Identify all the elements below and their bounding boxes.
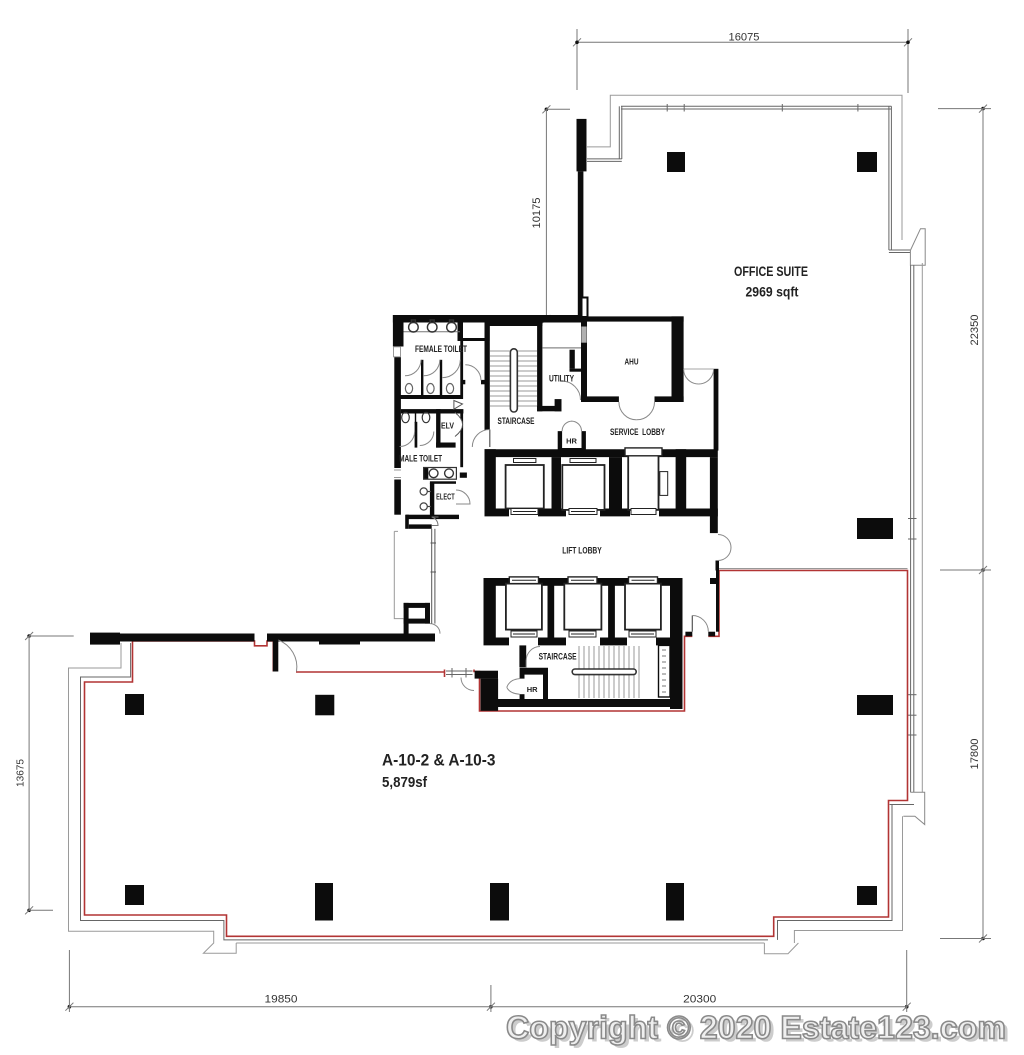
svg-text:ELECT: ELECT (436, 493, 455, 502)
svg-text:SERVICE LOBBY: SERVICE LOBBY (610, 427, 665, 437)
svg-text:16075: 16075 (729, 32, 760, 44)
svg-text:HR: HR (566, 437, 577, 446)
svg-text:OFFICE SUITE: OFFICE SUITE (734, 264, 808, 279)
svg-text:HR: HR (527, 685, 538, 694)
svg-text:13675: 13675 (16, 759, 27, 787)
svg-text:STAIRCASE: STAIRCASE (498, 416, 535, 426)
svg-text:UTILITY: UTILITY (549, 374, 574, 384)
svg-text:STAIRCASE: STAIRCASE (539, 652, 577, 662)
svg-text:AHU: AHU (625, 357, 639, 367)
svg-text:MALE TOILET: MALE TOILET (399, 454, 442, 464)
svg-text:17800: 17800 (969, 739, 981, 770)
svg-text:LIFT LOBBY: LIFT LOBBY (562, 545, 602, 555)
svg-text:5,879sf: 5,879sf (382, 774, 428, 791)
svg-text:ELV: ELV (441, 422, 455, 431)
svg-text:Copyright © 2020 Estate123.com: Copyright © 2020 Estate123.com (506, 1010, 1006, 1046)
svg-text:20300: 20300 (683, 994, 716, 1006)
svg-text:10175: 10175 (531, 198, 543, 229)
svg-text:A-10-2 & A-10-3: A-10-2 & A-10-3 (382, 751, 496, 770)
svg-text:19850: 19850 (265, 994, 298, 1006)
svg-text:FEMALE TOILET: FEMALE TOILET (415, 344, 467, 354)
svg-text:2969 sqft: 2969 sqft (746, 284, 799, 300)
svg-text:22350: 22350 (969, 315, 981, 346)
